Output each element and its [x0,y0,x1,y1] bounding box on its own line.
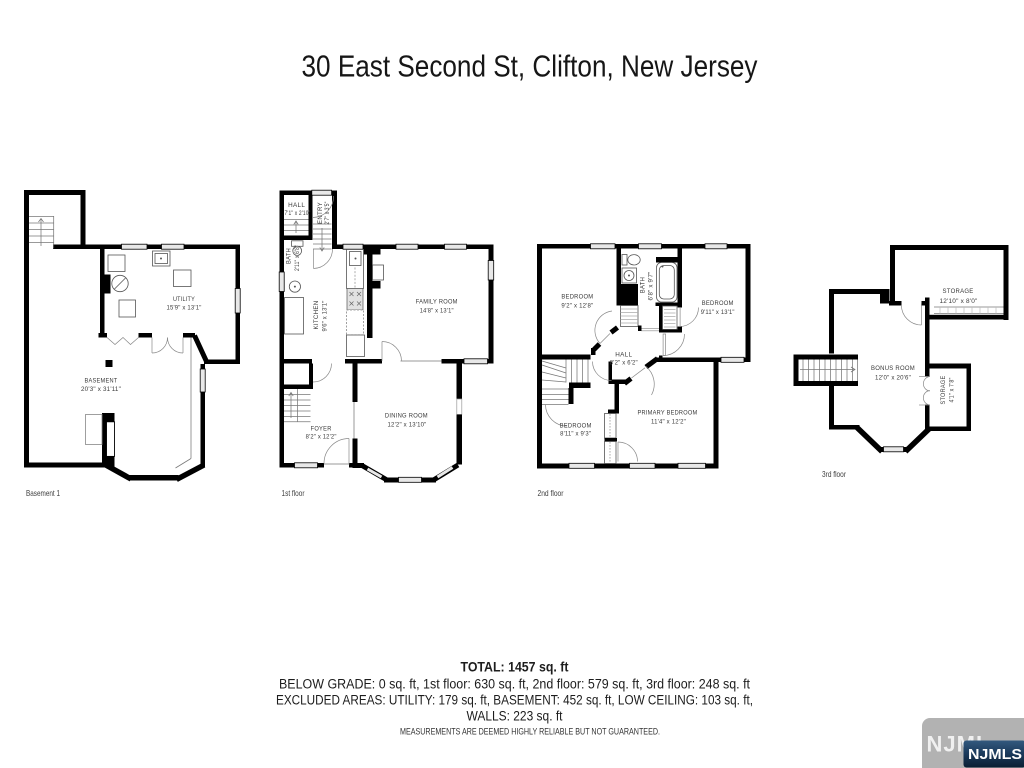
svg-text:BATH: BATH [286,248,293,264]
svg-text:8'2" x 12'2": 8'2" x 12'2" [306,434,337,441]
svg-text:8'11" x 9'3": 8'11" x 9'3" [560,431,591,438]
svg-text:BONUS ROOM: BONUS ROOM [871,365,915,372]
svg-text:14'8" x 13'1": 14'8" x 13'1" [420,308,454,315]
svg-text:MEASUREMENTS ARE DEEMED HIGHLY: MEASUREMENTS ARE DEEMED HIGHLY RELIABLE … [400,727,660,737]
svg-text:PRIMARY BEDROOM: PRIMARY BEDROOM [638,410,698,417]
svg-text:HALL: HALL [615,352,632,359]
svg-text:11'4" x 12'2": 11'4" x 12'2" [651,419,686,426]
svg-text:BELOW GRADE: 0 sq. ft, 1st flo: BELOW GRADE: 0 sq. ft, 1st floor: 630 sq… [279,677,750,692]
svg-text:UTILITY: UTILITY [173,296,195,303]
svg-text:12'0" x 20'6": 12'0" x 20'6" [875,375,911,382]
svg-text:9'2" x 12'8": 9'2" x 12'8" [561,303,593,310]
svg-text:ENTRY: ENTRY [317,202,324,224]
svg-text:30 East Second St, Clifton, Ne: 30 East Second St, Clifton, New Jersey [302,49,758,84]
svg-text:BATH: BATH [640,277,647,294]
svg-text:FAMILY ROOM: FAMILY ROOM [416,299,458,306]
svg-text:BEDROOM: BEDROOM [561,294,593,301]
svg-text:12'10" x 8'0": 12'10" x 8'0" [940,298,978,305]
svg-text:9'6" x 13'1": 9'6" x 13'1" [322,301,329,332]
svg-text:STORAGE: STORAGE [940,376,947,405]
svg-text:KITCHEN: KITCHEN [313,301,320,330]
svg-text:Basement 1: Basement 1 [26,488,60,498]
svg-text:2'11" x 6'8": 2'11" x 6'8" [295,245,301,271]
svg-text:STORAGE: STORAGE [943,288,974,295]
svg-text:NJMLS: NJMLS [968,747,1022,763]
svg-text:BASEMENT: BASEMENT [85,378,118,385]
svg-text:2nd floor: 2nd floor [538,488,564,498]
svg-text:15'9" x 13'1": 15'9" x 13'1" [167,305,202,312]
svg-text:9'11" x 13'1": 9'11" x 13'1" [701,309,735,316]
svg-text:EXCLUDED AREAS: UTILITY: 179 s: EXCLUDED AREAS: UTILITY: 179 sq. ft, BAS… [276,693,753,708]
svg-text:1st floor: 1st floor [282,488,305,498]
svg-text:2'7" x 3'5": 2'7" x 3'5" [325,202,331,225]
svg-text:7'1" x 2'10": 7'1" x 2'10" [285,211,311,217]
svg-text:BEDROOM: BEDROOM [560,423,592,430]
svg-text:12'2" x 13'10": 12'2" x 13'10" [388,422,427,429]
svg-text:HALL: HALL [288,202,305,209]
svg-text:8'2" x 6'2": 8'2" x 6'2" [610,360,638,367]
svg-text:WALLS: 223 sq. ft: WALLS: 223 sq. ft [467,709,563,724]
svg-text:FOYER: FOYER [311,426,332,433]
svg-text:TOTAL: 1457 sq. ft: TOTAL: 1457 sq. ft [461,660,569,675]
svg-text:6'8" x 9'7": 6'8" x 9'7" [649,272,655,301]
svg-text:DINING ROOM: DINING ROOM [385,413,428,420]
svg-text:4'1" x 7'8": 4'1" x 7'8" [950,378,956,403]
svg-text:3rd floor: 3rd floor [822,469,846,479]
svg-text:BEDROOM: BEDROOM [702,300,734,307]
svg-text:20'3" x 31'11": 20'3" x 31'11" [81,386,121,393]
